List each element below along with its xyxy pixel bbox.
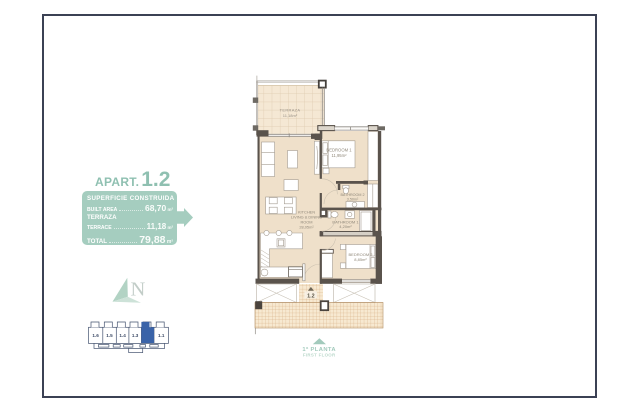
svg-text:1.1: 1.1 <box>158 333 165 338</box>
svg-text:3,50m²: 3,50m² <box>347 197 359 201</box>
svg-text:8,85m²: 8,85m² <box>354 257 367 262</box>
svg-text:N: N <box>131 278 146 300</box>
svg-text:1.6: 1.6 <box>92 333 99 338</box>
svg-text:FIRST FLOOR: FIRST FLOOR <box>303 353 336 358</box>
svg-text:11,95m²: 11,95m² <box>331 153 347 158</box>
svg-text:BATHROOM 2: BATHROOM 2 <box>340 193 364 197</box>
svg-text:BEDROOM 1: BEDROOM 1 <box>326 148 352 153</box>
svg-text:1.3: 1.3 <box>132 333 139 338</box>
svg-text:1.2: 1.2 <box>307 294 315 300</box>
svg-text:4,20m²: 4,20m² <box>339 224 352 229</box>
svg-text:TERRAZA: TERRAZA <box>280 108 301 113</box>
svg-text:28,05m²: 28,05m² <box>299 225 314 230</box>
svg-text:11,18m²: 11,18m² <box>283 113 298 118</box>
svg-text:1.5: 1.5 <box>106 333 113 338</box>
svg-text:1.4: 1.4 <box>119 333 126 338</box>
